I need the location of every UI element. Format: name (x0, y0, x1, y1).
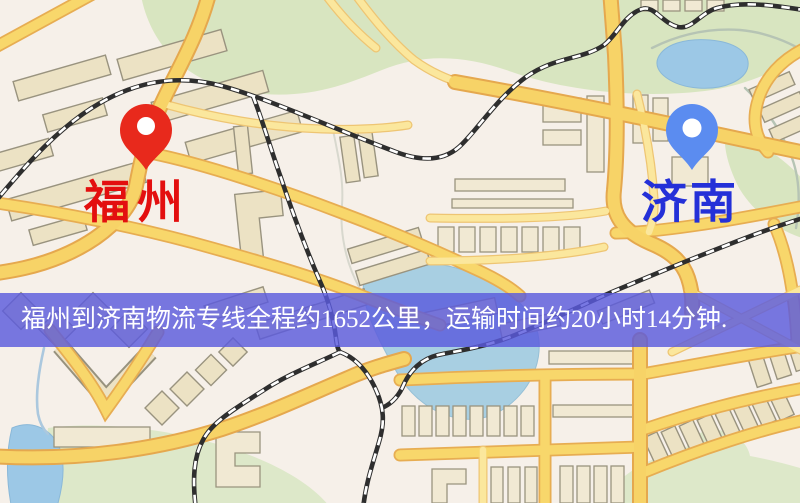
map-screenshot: 福州 济南 福州到济南物流专线全程约1652公里，运输时间约20小时14分钟. (0, 0, 800, 503)
destination-city-label: 济南 (641, 180, 739, 226)
destination-pin-hole (683, 119, 702, 138)
origin-pin-hole (137, 117, 155, 135)
origin-city-label: 福州 (84, 180, 190, 226)
route-info-banner: 福州到济南物流专线全程约1652公里，运输时间约20小时14分钟. (0, 293, 800, 347)
map-canvas (0, 0, 800, 503)
route-info-text: 福州到济南物流专线全程约1652公里，运输时间约20小时14分钟. (21, 293, 791, 347)
